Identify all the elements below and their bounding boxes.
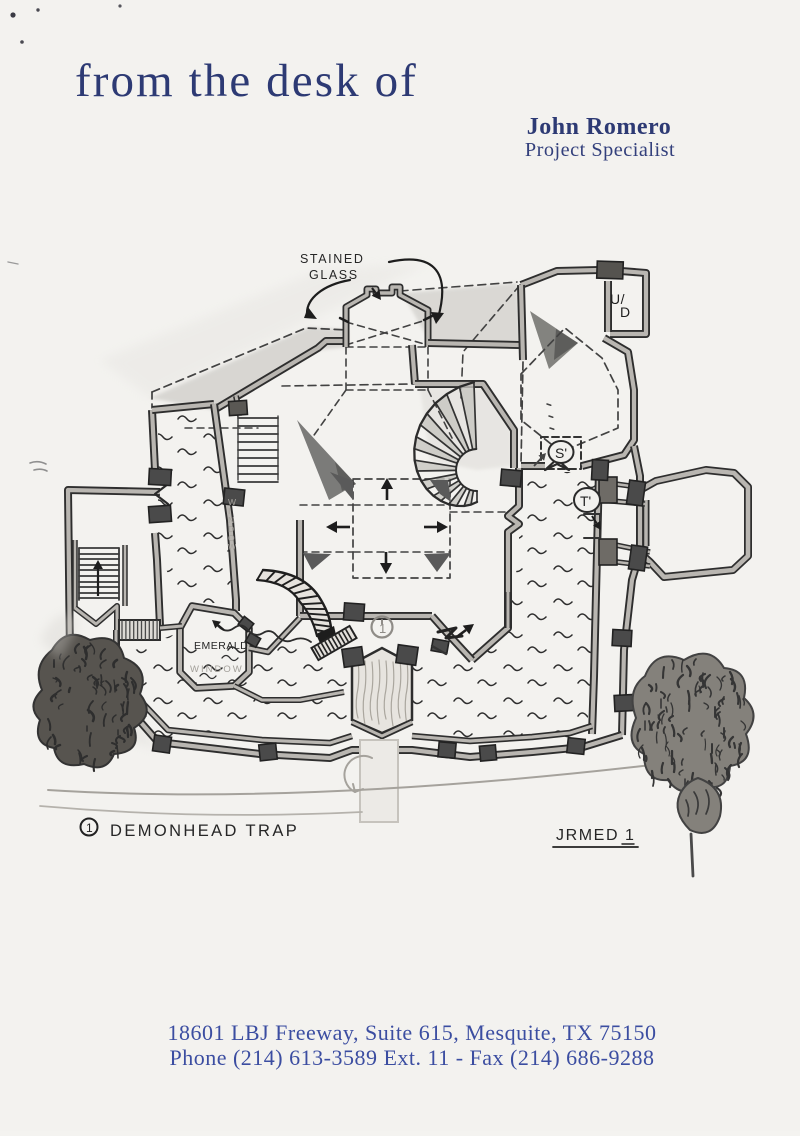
svg-text:JRMED: JRMED xyxy=(556,827,619,844)
svg-text:STAINED: STAINED xyxy=(300,252,364,266)
svg-text:WINDOW: WINDOW xyxy=(190,664,244,675)
svg-text:DEMONHEAD TRAP: DEMONHEAD TRAP xyxy=(110,822,299,840)
svg-text:GLASS: GLASS xyxy=(309,268,359,282)
svg-text:T': T' xyxy=(580,493,591,509)
svg-text:Project Specialist: Project Specialist xyxy=(525,139,675,161)
svg-text:Phone (214) 613-3589 Ext. 11 -: Phone (214) 613-3589 Ext. 11 - Fax (214)… xyxy=(169,1045,654,1070)
svg-text:1: 1 xyxy=(86,821,93,835)
svg-text:S': S' xyxy=(555,445,567,461)
svg-text:18601 LBJ Freeway, Suite 615,: 18601 LBJ Freeway, Suite 615, Mesquite, … xyxy=(167,1020,656,1045)
svg-text:from the desk of: from the desk of xyxy=(75,55,418,107)
svg-text:1: 1 xyxy=(625,827,634,844)
svg-text:EMERALD: EMERALD xyxy=(194,640,248,652)
svg-text:D: D xyxy=(620,304,631,320)
svg-text:John Romero: John Romero xyxy=(527,114,671,140)
svg-text:W: W xyxy=(228,542,236,552)
